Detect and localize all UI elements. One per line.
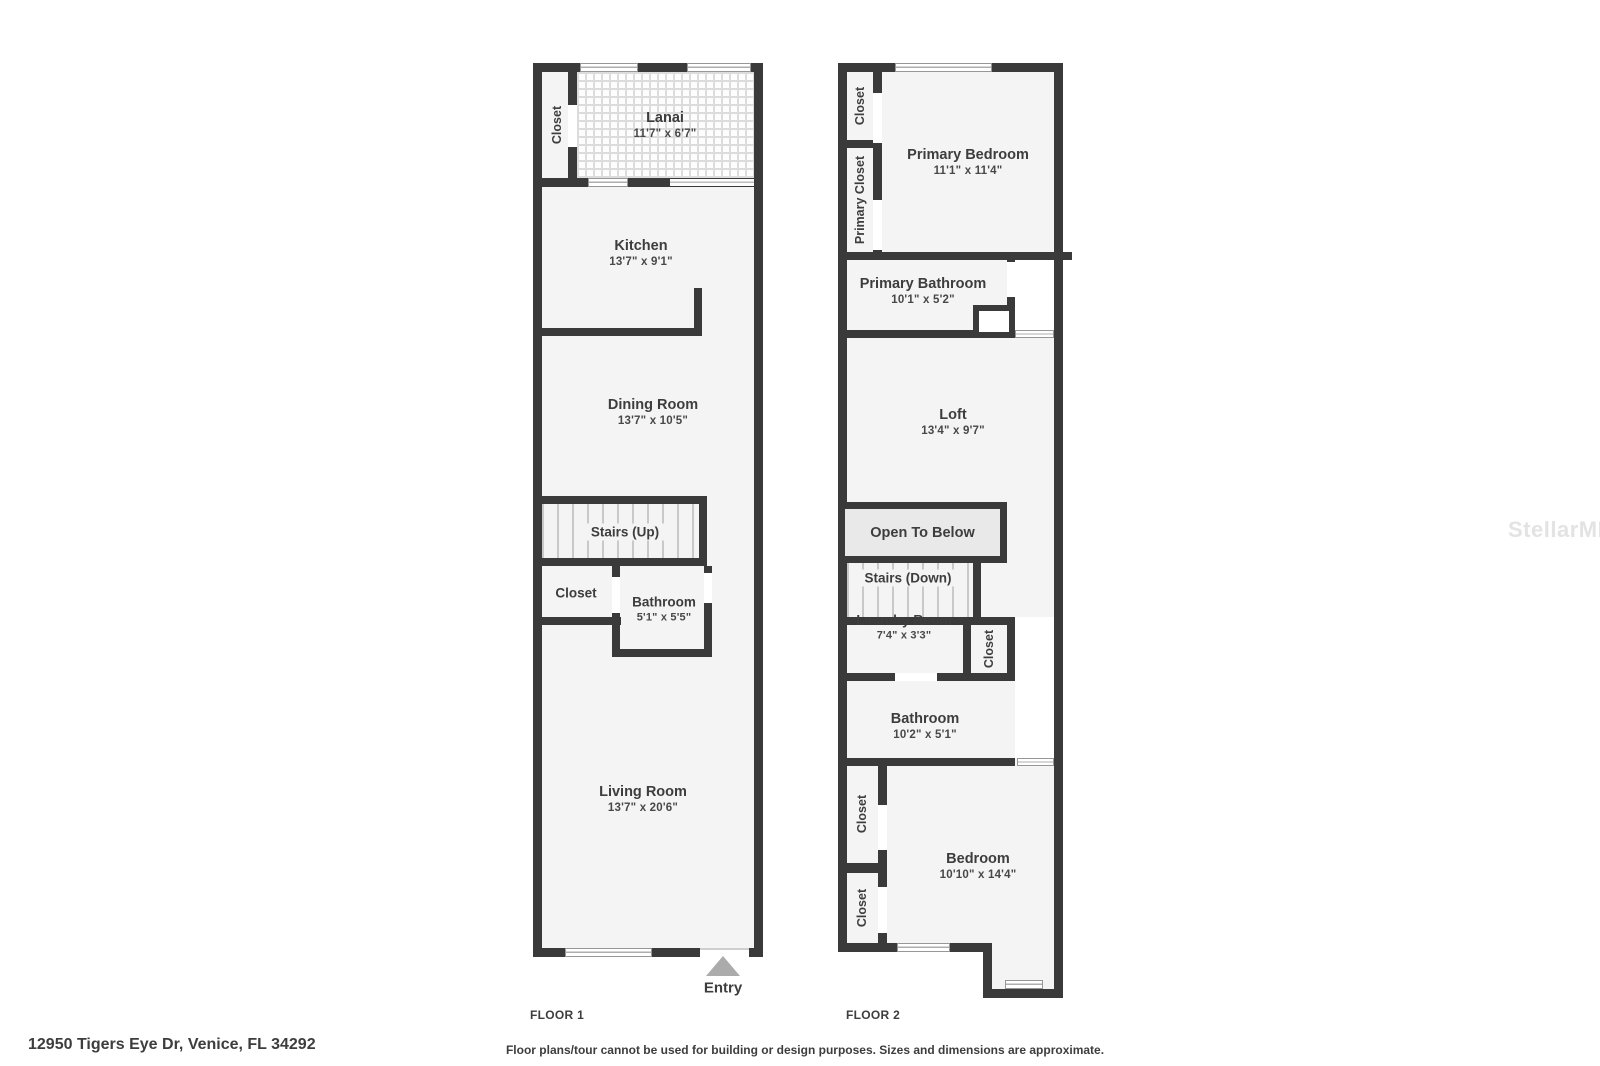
door-opening <box>1007 262 1015 297</box>
room-label-living-room: Living Room 13'7" x 20'6" <box>599 783 687 816</box>
wall <box>533 496 707 504</box>
room-name: Primary Bathroom <box>860 275 987 293</box>
window <box>895 63 992 72</box>
floor1-caption: FLOOR 1 <box>530 1008 584 1022</box>
room-label-dining-room: Dining Room 13'7" x 10'5" <box>608 396 698 429</box>
door-opening <box>704 573 712 603</box>
room-name: Bedroom <box>940 850 1017 868</box>
room-label-bathroom: Bathroom 5'1" x 5'5" <box>632 595 696 626</box>
window <box>580 63 638 72</box>
room-name: Laundry Room <box>856 613 951 630</box>
wall <box>973 563 981 617</box>
room-dims: 11'1" x 11'4" <box>907 164 1029 178</box>
door-opening <box>568 105 577 147</box>
room-dims: 13'7" x 10'5" <box>608 414 698 428</box>
window <box>1017 758 1054 766</box>
room-name: Dining Room <box>608 396 698 414</box>
window <box>1005 980 1043 989</box>
open-to-below-area: Open To Below <box>838 502 1007 563</box>
wall <box>533 328 702 336</box>
stellar-mls-watermark: StellarMLS <box>1508 517 1600 543</box>
room-label-primary-bedroom: Primary Bedroom 11'1" x 11'4" <box>907 146 1029 179</box>
floor-plan-page: Closet Lanai 11'7" x 6'7" Kitchen 13'7" … <box>0 0 1600 1066</box>
room-name: Living Room <box>599 783 687 801</box>
property-address: 12950 Tigers Eye Dr, Venice, FL 34292 <box>28 1036 316 1054</box>
wall <box>963 625 971 673</box>
room-label-bedroom-closet-2: Closet <box>855 889 869 927</box>
room-dims: 10'1" x 5'2" <box>860 293 987 307</box>
window <box>897 943 950 952</box>
room-dims: 10'2" x 5'1" <box>891 728 959 742</box>
room-dims: 5'1" x 5'5" <box>632 612 696 626</box>
room-label-laundry-closet: Closet <box>982 630 996 668</box>
disclaimer-text: Floor plans/tour cannot be used for buil… <box>506 1043 1104 1057</box>
room-label-primary-closet: Primary Closet <box>853 156 867 244</box>
room-name: Lanai <box>634 109 697 127</box>
room-label-stairs-down: Stairs (Down) <box>857 570 958 587</box>
wall <box>694 288 702 336</box>
room-label-lanai: Lanai 11'7" x 6'7" <box>634 109 697 142</box>
room-label-closet-top: Closet <box>550 106 564 144</box>
wall <box>1007 617 1015 681</box>
room-name: Primary Bedroom <box>907 146 1029 164</box>
sliding-door <box>670 179 754 186</box>
wall <box>612 649 712 657</box>
floor2-bedroom-extension <box>983 943 1063 998</box>
exterior-notch <box>1015 617 1054 758</box>
room-dims: 7'4" x 3'3" <box>856 630 951 644</box>
entry-arrow-icon <box>706 956 740 976</box>
window <box>565 948 652 957</box>
room-dims: 13'7" x 9'1" <box>609 255 673 269</box>
window <box>687 63 751 72</box>
room-name: Loft <box>921 406 985 424</box>
door-opening <box>612 577 620 613</box>
room-dims: 13'7" x 20'6" <box>599 801 687 815</box>
room-label-loft: Loft 13'4" x 9'7" <box>921 406 985 439</box>
wall <box>838 758 1015 766</box>
shower-stub <box>973 305 1015 338</box>
door-opening <box>873 200 882 250</box>
room-label-kitchen: Kitchen 13'7" x 9'1" <box>609 237 673 270</box>
room-label-closet-top: Closet <box>853 87 867 125</box>
door-opening <box>873 93 882 143</box>
room-label-laundry-room: Laundry Room 7'4" x 3'3" <box>856 613 951 644</box>
wall <box>838 863 887 873</box>
open-to-below-label: Open To Below <box>870 525 974 541</box>
window <box>1015 330 1054 338</box>
floor2-plan: Open To Below Closet Primary Closet Prim… <box>838 63 1063 952</box>
room-dims: 10'10" x 14'4" <box>940 868 1017 882</box>
floor2-caption: FLOOR 2 <box>846 1008 900 1022</box>
room-label-primary-bathroom: Primary Bathroom 10'1" x 5'2" <box>860 275 987 308</box>
wall <box>699 496 707 566</box>
room-name: Bathroom <box>632 595 696 612</box>
wall <box>838 252 1072 260</box>
room-dims: 13'4" x 9'7" <box>921 424 985 438</box>
door-opening <box>878 805 887 850</box>
exterior-notch <box>1015 260 1054 330</box>
entry-label: Entry <box>704 980 742 997</box>
room-label-bathroom2: Bathroom 10'2" x 5'1" <box>891 710 959 743</box>
wall <box>533 558 707 566</box>
room-label-bedroom: Bedroom 10'10" x 14'4" <box>940 850 1017 883</box>
door-opening <box>895 673 937 681</box>
wall <box>533 617 621 625</box>
room-name: Kitchen <box>609 237 673 255</box>
room-label-stairs-up: Stairs (Up) <box>584 524 666 541</box>
room-label-closet-hall: Closet <box>555 586 596 601</box>
room-label-bedroom-closet-1: Closet <box>855 795 869 833</box>
room-name: Bathroom <box>891 710 959 728</box>
room-dims: 11'7" x 6'7" <box>634 127 697 141</box>
door-opening <box>878 887 887 933</box>
window <box>588 178 628 187</box>
floor1-plan: Closet Lanai 11'7" x 6'7" Kitchen 13'7" … <box>533 63 763 957</box>
